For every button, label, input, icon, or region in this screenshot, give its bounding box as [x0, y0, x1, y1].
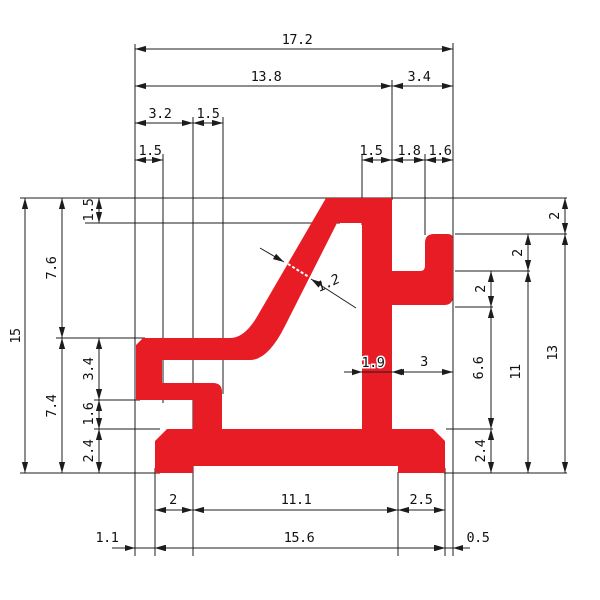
dim-notch-offset: 3.2	[149, 106, 172, 122]
dim-left-offset: 1.1	[96, 530, 119, 546]
dim-wall-thickness: 1.2	[315, 271, 343, 295]
profile-shape	[136, 198, 453, 473]
dim-top-left-span: 13.8	[251, 69, 282, 85]
dim-right-foot: 2.5	[410, 492, 433, 508]
dim-neck-zone: 1.6	[81, 402, 97, 425]
dim-tab-to-bottom: 13	[545, 345, 561, 361]
dim-top-to-tab: 2	[547, 212, 563, 220]
drawing-svg: 17.2 13.8 3.4 3.2 1.5 1.5 1.5 1.8 1.6 15…	[0, 0, 600, 600]
dim-notch-width: 1.5	[197, 106, 220, 122]
dim-bar-width: 1.9	[362, 355, 385, 371]
dim-lower-height: 7.4	[44, 394, 60, 417]
dim-recess-width: 11.1	[281, 492, 312, 508]
dim-bar-width-top: 1.5	[360, 143, 383, 159]
dim-arm-zone: 3.4	[81, 357, 97, 380]
dim-base-thick-left: 2.4	[81, 439, 97, 462]
dim-base-thick-right: 2.4	[473, 439, 489, 462]
dim-arm-to-base: 6.6	[471, 356, 487, 379]
dim-bar-to-edge: 3	[420, 354, 428, 370]
dim-upper-height: 7.6	[44, 256, 60, 279]
dim-top-bar-thick: 1.5	[81, 198, 97, 221]
dim-base-width: 15.6	[284, 530, 315, 546]
dim-right-offset: 0.5	[467, 530, 490, 546]
dim-top-overall: 17.2	[282, 32, 313, 48]
dim-tab-to-arm: 2	[510, 249, 526, 257]
dim-left-foot: 2	[169, 492, 177, 508]
dim-bar-tab-gap: 1.8	[398, 143, 421, 159]
dim-tab-width: 1.6	[429, 143, 452, 159]
dim-arm-to-bottom: 11	[508, 364, 524, 380]
dim-left-wall-width: 1.5	[139, 143, 162, 159]
dim-overall-height: 15	[8, 328, 24, 344]
technical-drawing-canvas: 17.2 13.8 3.4 3.2 1.5 1.5 1.5 1.8 1.6 15…	[0, 0, 600, 600]
dim-top-right-span: 3.4	[408, 69, 431, 85]
dim-arm-thickness: 2	[473, 285, 489, 293]
